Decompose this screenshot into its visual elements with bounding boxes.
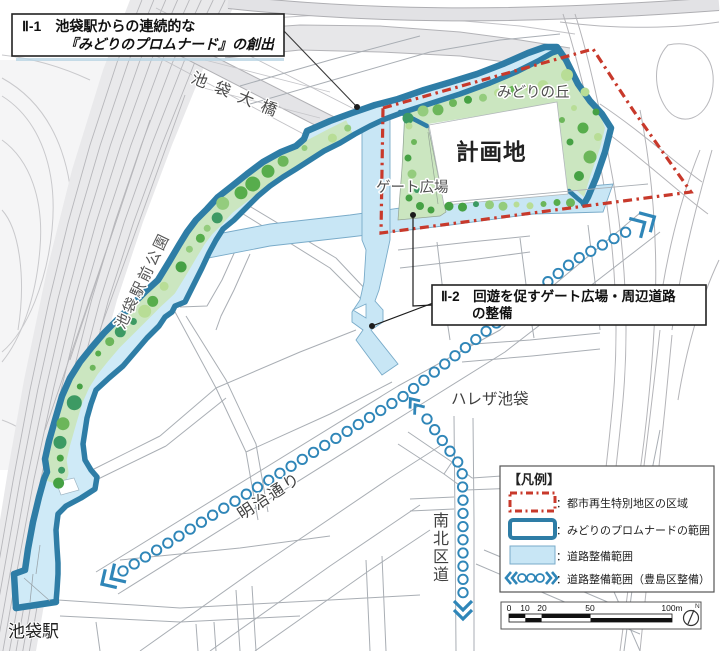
svg-text:北: 北	[433, 530, 449, 548]
svg-text:10: 10	[520, 603, 530, 613]
svg-text:みどりの丘: みどりの丘	[497, 84, 570, 101]
svg-text:：都市再生特別地区の区域: ：都市再生特別地区の区域	[556, 496, 688, 510]
svg-text:池袋駅: 池袋駅	[8, 622, 59, 641]
svg-text:道: 道	[433, 566, 449, 584]
svg-text:N: N	[695, 603, 700, 610]
svg-text:20: 20	[537, 603, 547, 613]
svg-text:計画地: 計画地	[456, 139, 527, 165]
svg-text:区: 区	[433, 549, 449, 566]
svg-text:【凡例】: 【凡例】	[508, 472, 560, 487]
svg-text:ゲート広場: ゲート広場	[376, 179, 449, 196]
svg-text:：みどりのプロムナードの範囲: ：みどりのプロムナードの範囲	[556, 523, 710, 537]
svg-text:0: 0	[507, 603, 512, 613]
svg-text:南: 南	[433, 512, 449, 530]
svg-text:：道路整備範囲: ：道路整備範囲	[556, 549, 633, 563]
svg-text:100m: 100m	[661, 603, 682, 613]
svg-text:50: 50	[585, 603, 595, 613]
svg-text:ハレザ池袋: ハレザ池袋	[451, 390, 529, 408]
svg-text:Ⅱ-1 池袋駅からの連続的な: Ⅱ-1 池袋駅からの連続的な	[22, 18, 195, 34]
svg-text:『みどりのプロムナード』の創出: 『みどりのプロムナード』の創出	[64, 36, 275, 52]
svg-text:：道路整備範囲（豊島区整備）: ：道路整備範囲（豊島区整備）	[556, 572, 710, 586]
svg-text:の整備: の整備	[472, 305, 513, 321]
svg-text:Ⅱ-2 回遊を促すゲート広場・周辺道路: Ⅱ-2 回遊を促すゲート広場・周辺道路	[441, 288, 676, 304]
